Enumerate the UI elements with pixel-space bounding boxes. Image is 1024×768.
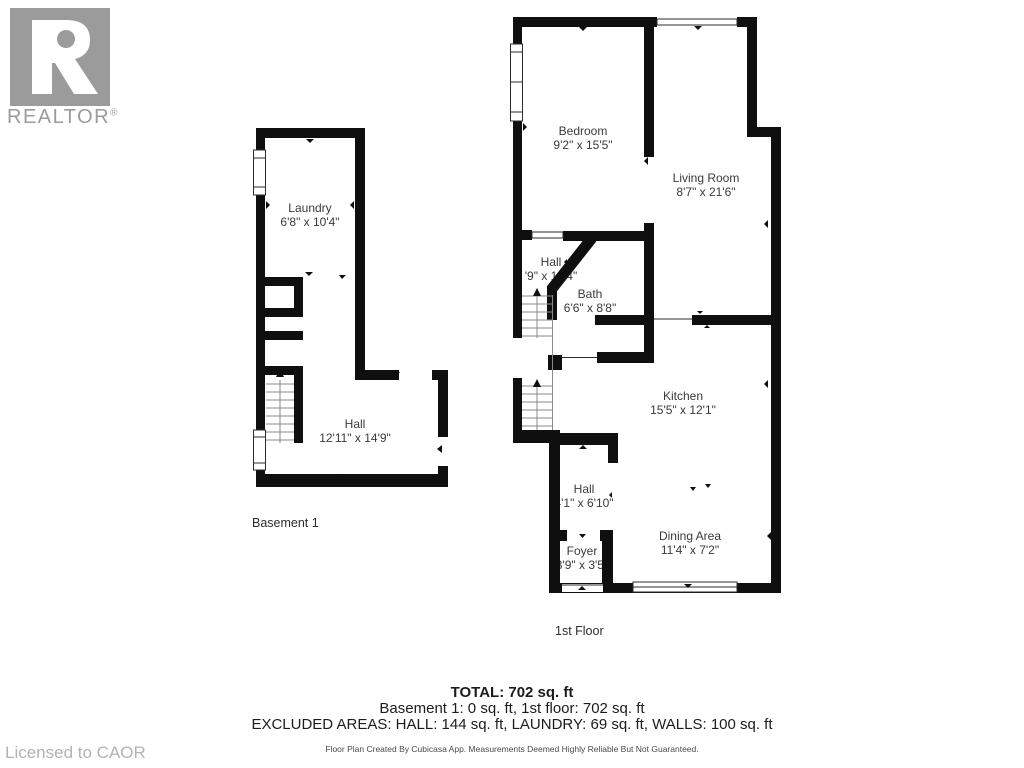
room-label-kitchen: Kitchen15'5" x 12'1" [650, 389, 716, 417]
first-floor-stairs [522, 292, 553, 430]
realtor-r-glyph [10, 8, 110, 106]
room-label-basement-hall: Hall12'11" x 14'9" [319, 417, 391, 445]
basement-stairs [266, 380, 294, 443]
stairs-up-arrow [533, 288, 541, 296]
area-summary: TOTAL: 702 sq. ft Basement 1: 0 sq. ft, … [0, 685, 1024, 754]
basement-caption: Basement 1 [252, 516, 319, 530]
basement-windows [254, 150, 266, 470]
realtor-logo-icon [10, 8, 110, 106]
room-label-dining-area: Dining Area11'4" x 7'2" [659, 529, 721, 557]
room-label-laundry: Laundry6'8" x 10'4" [280, 201, 339, 229]
disclaimer: Floor Plan Created By Cubicasa App. Meas… [0, 745, 1024, 754]
room-label-lower-hall: Hall4'1" x 6'10" [554, 482, 613, 510]
first-floor-door-markers [515, 26, 771, 590]
excluded-areas: EXCLUDED AREAS: HALL: 144 sq. ft, LAUNDR… [0, 717, 1024, 732]
first-floor-windows [511, 19, 738, 592]
room-label-upper-hall: Hall'9" x 10'4" [525, 255, 577, 283]
floor-plan-page: REALTOR® Laundry6'8" x 10'4" Hall12'11" … [0, 0, 1024, 768]
room-label-bath: Bath6'6" x 8'8" [564, 287, 616, 315]
floor-areas: Basement 1: 0 sq. ft, 1st floor: 702 sq.… [0, 701, 1024, 716]
stairs-up-arrow [276, 369, 284, 377]
first-floor-caption: 1st Floor [555, 624, 604, 638]
room-label-bedroom: Bedroom9'2" x 15'5" [553, 124, 612, 152]
total-area: TOTAL: 702 sq. ft [0, 685, 1024, 700]
floor-plan-walls [0, 0, 1024, 768]
room-label-foyer: Foyer3'9" x 3'5" [556, 544, 608, 572]
registered-mark: ® [110, 107, 117, 118]
first-floor-walls [513, 17, 781, 593]
license-text: Licensed to CAOR [5, 743, 146, 763]
stairs-up-arrow [533, 379, 541, 387]
realtor-wordmark: REALTOR® [7, 106, 118, 129]
room-label-living-room: Living Room8'7" x 21'6" [673, 171, 740, 199]
